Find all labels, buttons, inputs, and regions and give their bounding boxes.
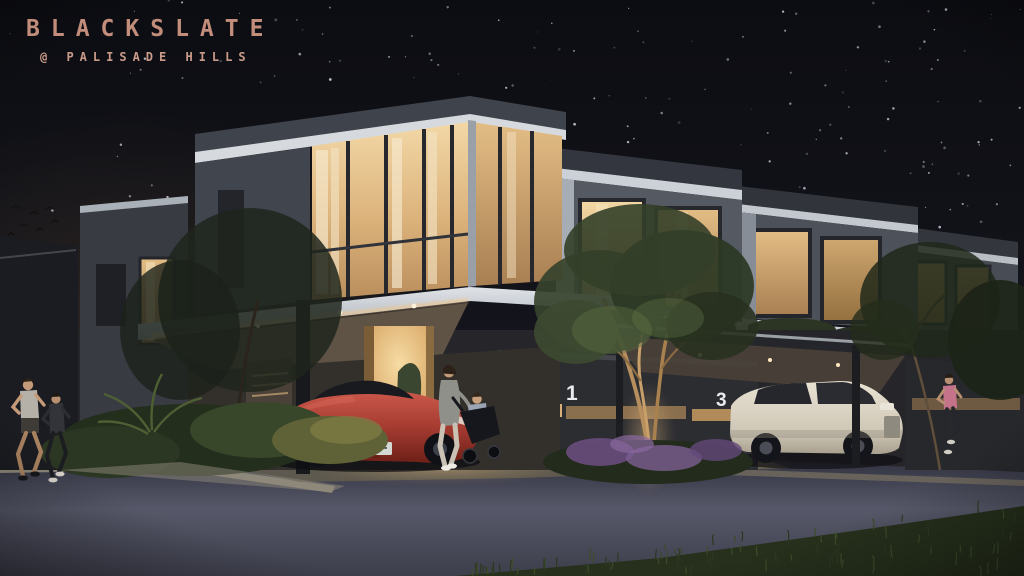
vignette-overlay	[0, 0, 1024, 576]
scene-artwork: 1 3	[0, 0, 1024, 576]
night-render-scene: 1 3 BLACKSLATE @ PALISADE HILLS	[0, 0, 1024, 576]
brand-location: @ PALISADE HILLS	[26, 50, 274, 64]
brand-logo: BLACKSLATE @ PALISADE HILLS	[26, 16, 274, 64]
brand-name: BLACKSLATE	[26, 16, 274, 42]
